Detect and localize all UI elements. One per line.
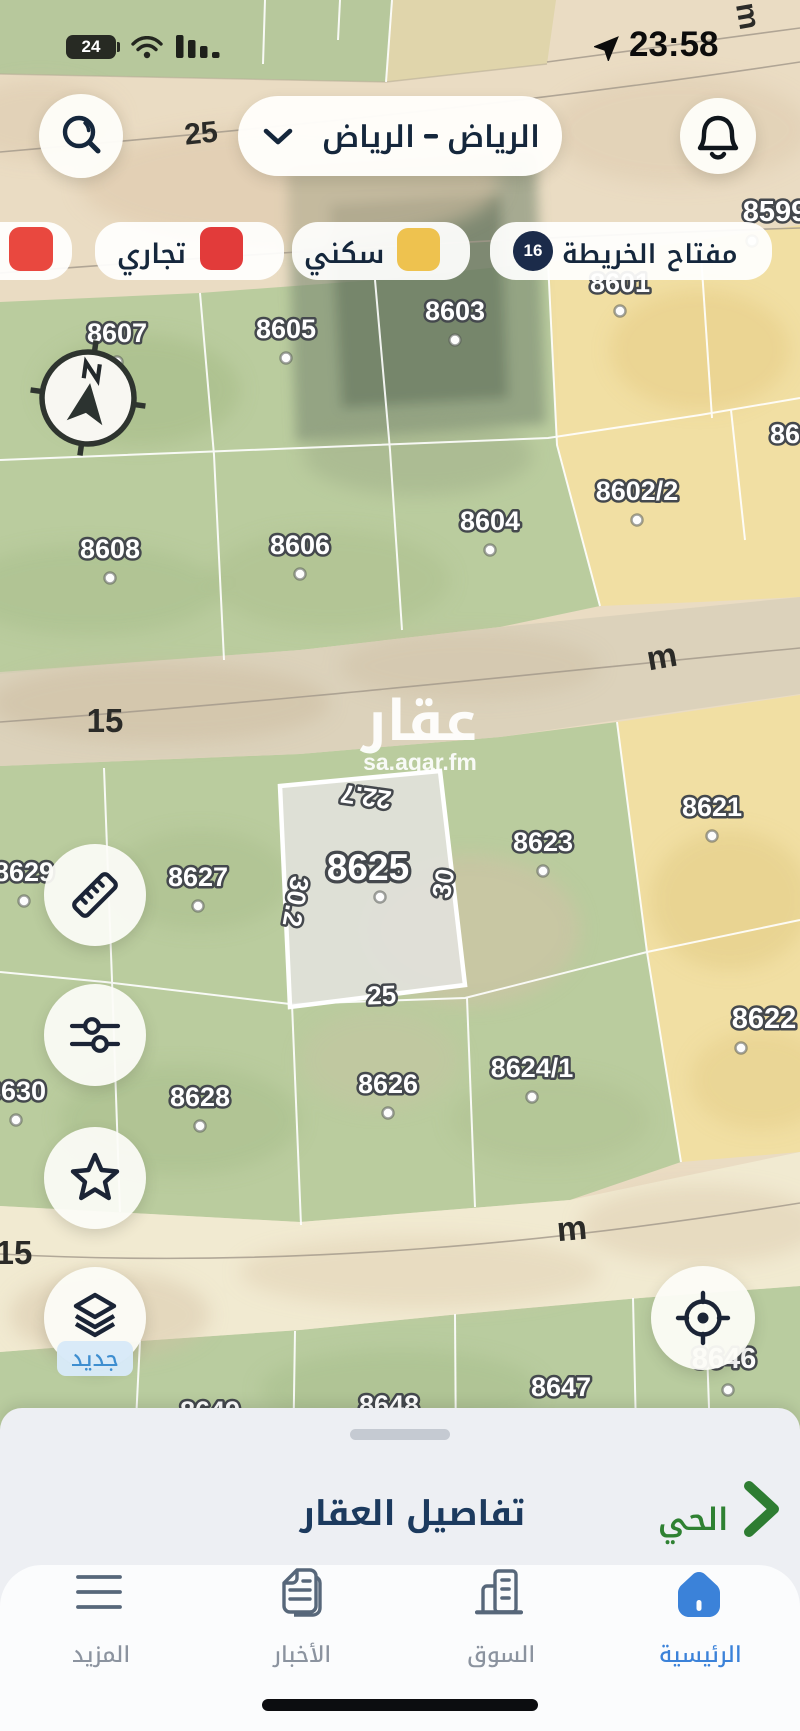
svg-text:8600: 8600 — [770, 419, 800, 449]
svg-text:8628: 8628 — [170, 1082, 230, 1112]
svg-text:8622: 8622 — [732, 1003, 797, 1035]
svg-text:8605: 8605 — [256, 314, 316, 344]
svg-text:sa.aqar.fm: sa.aqar.fm — [363, 749, 477, 775]
svg-text:30: 30 — [426, 867, 461, 901]
svg-text:25: 25 — [367, 980, 397, 1011]
svg-text:25: 25 — [183, 115, 220, 151]
svg-text:8603: 8603 — [425, 296, 485, 326]
svg-text:8608: 8608 — [80, 534, 140, 564]
svg-text:8627: 8627 — [168, 862, 228, 892]
svg-text:8623: 8623 — [513, 827, 573, 857]
svg-text:8647: 8647 — [531, 1372, 591, 1402]
svg-text:m: m — [555, 1209, 588, 1249]
svg-text:8621: 8621 — [682, 792, 742, 822]
svg-text:8630: 8630 — [0, 1076, 46, 1106]
svg-text:8604: 8604 — [460, 506, 520, 536]
svg-text:8606: 8606 — [270, 530, 330, 560]
svg-text:8626: 8626 — [358, 1069, 418, 1099]
svg-text:15: 15 — [0, 1234, 32, 1271]
svg-text:15: 15 — [87, 702, 124, 739]
svg-text:8602/2: 8602/2 — [596, 476, 679, 506]
svg-text:m: m — [729, 0, 766, 32]
svg-text:8625: 8625 — [327, 847, 409, 888]
svg-text:8624/1: 8624/1 — [491, 1053, 574, 1083]
